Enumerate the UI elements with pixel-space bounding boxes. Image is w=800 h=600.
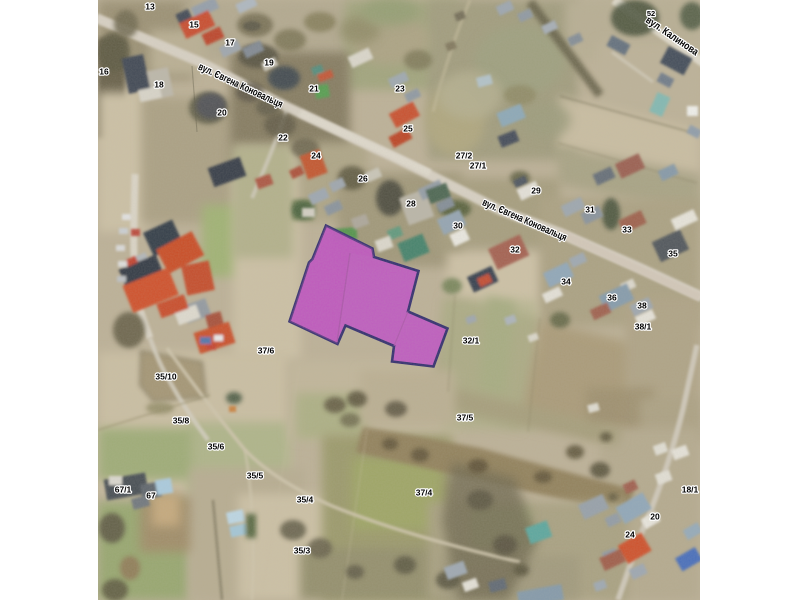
svg-text:32/1: 32/1 xyxy=(463,336,480,346)
svg-text:18/1: 18/1 xyxy=(682,485,699,495)
svg-text:27/2: 27/2 xyxy=(456,151,473,161)
svg-text:16: 16 xyxy=(99,67,109,77)
svg-text:21: 21 xyxy=(309,84,319,94)
svg-text:30: 30 xyxy=(453,221,463,231)
svg-text:26: 26 xyxy=(358,174,368,184)
svg-text:19: 19 xyxy=(264,58,274,68)
svg-text:17: 17 xyxy=(225,38,235,48)
svg-text:20: 20 xyxy=(217,108,227,118)
svg-text:18: 18 xyxy=(154,80,164,90)
svg-text:35/10: 35/10 xyxy=(155,372,177,382)
svg-text:35/5: 35/5 xyxy=(247,471,264,481)
svg-text:27/1: 27/1 xyxy=(470,161,487,171)
svg-text:35/4: 35/4 xyxy=(297,495,314,505)
svg-text:23: 23 xyxy=(395,84,405,94)
svg-text:37/4: 37/4 xyxy=(416,488,433,498)
svg-text:36: 36 xyxy=(607,293,617,303)
svg-text:28: 28 xyxy=(406,199,416,209)
svg-text:20: 20 xyxy=(650,512,660,522)
svg-text:37/6: 37/6 xyxy=(258,346,275,356)
svg-text:35: 35 xyxy=(668,249,678,259)
svg-text:29: 29 xyxy=(531,186,541,196)
svg-text:35/6: 35/6 xyxy=(208,442,225,452)
svg-text:67: 67 xyxy=(146,491,156,501)
svg-text:15: 15 xyxy=(189,20,199,30)
svg-text:24: 24 xyxy=(311,151,321,161)
svg-text:32: 32 xyxy=(510,245,520,255)
svg-text:37/5: 37/5 xyxy=(457,413,474,423)
svg-text:33: 33 xyxy=(622,225,632,235)
svg-text:38/1: 38/1 xyxy=(635,322,652,332)
svg-text:31: 31 xyxy=(585,205,595,215)
svg-text:35/3: 35/3 xyxy=(294,546,311,556)
svg-text:38: 38 xyxy=(637,301,647,311)
svg-text:25: 25 xyxy=(403,124,413,134)
svg-text:52: 52 xyxy=(647,9,655,18)
svg-text:13: 13 xyxy=(145,2,155,12)
svg-text:24: 24 xyxy=(625,530,635,540)
svg-text:35/8: 35/8 xyxy=(173,416,190,426)
svg-text:67/1: 67/1 xyxy=(115,485,132,495)
svg-text:34: 34 xyxy=(561,277,571,287)
svg-text:22: 22 xyxy=(278,133,288,143)
